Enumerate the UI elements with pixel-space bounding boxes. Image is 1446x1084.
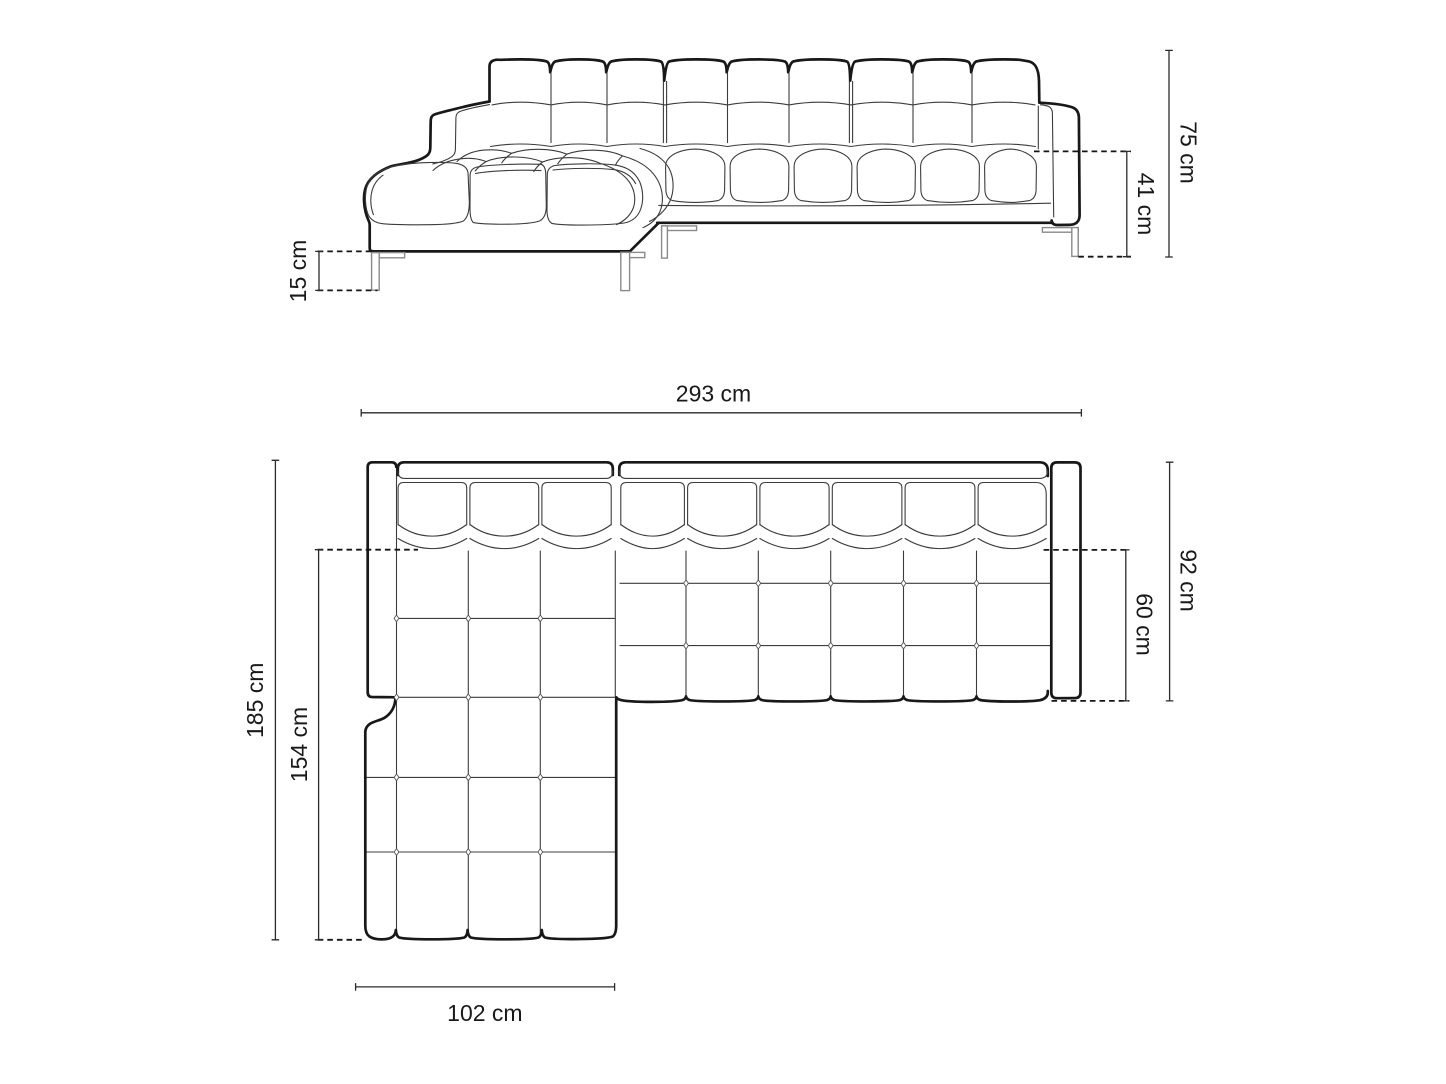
svg-text:15 cm: 15 cm — [285, 240, 311, 303]
svg-text:60 cm: 60 cm — [1132, 593, 1158, 656]
svg-text:102 cm: 102 cm — [447, 1000, 522, 1026]
svg-text:293 cm: 293 cm — [676, 380, 751, 406]
svg-text:154 cm: 154 cm — [286, 707, 312, 782]
svg-text:92 cm: 92 cm — [1175, 549, 1201, 612]
svg-text:41 cm: 41 cm — [1133, 173, 1159, 236]
svg-text:185 cm: 185 cm — [242, 663, 268, 738]
svg-text:75 cm: 75 cm — [1176, 121, 1202, 184]
